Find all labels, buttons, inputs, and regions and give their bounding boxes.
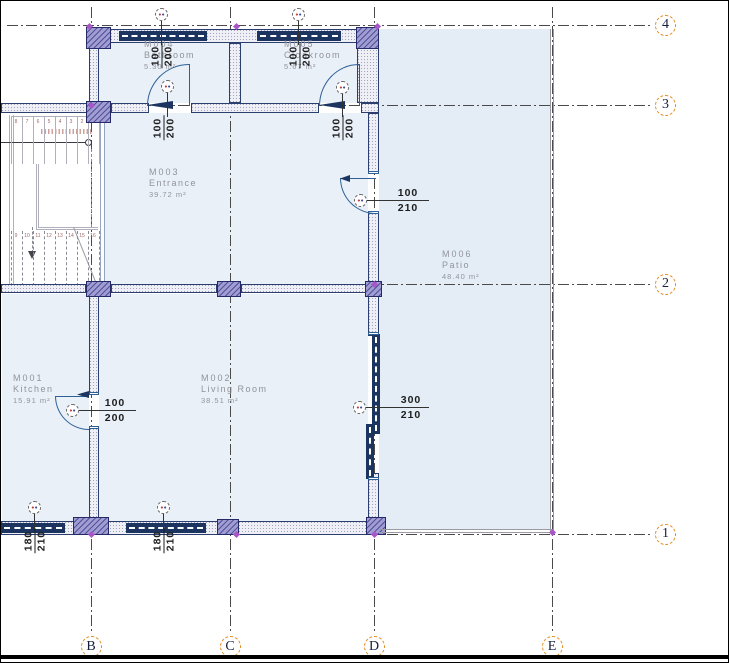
dim-width-kitchen-door[interactable]: 100 [93,397,137,409]
dim-height-bathroom-window: 200 [163,44,175,69]
dim-width-bathroom-door: 100 [152,116,165,141]
stair-tread-number: 12 [44,233,54,239]
stair-tread-number: 7 [22,119,32,125]
room-area: 39.72 m² [149,189,197,200]
stair-tread-number: 10 [22,233,32,239]
stair-walk-line-down [91,149,92,227]
cloakroom-door-leaf-open[interactable] [359,64,360,106]
wall-kitchen-divider-upper[interactable] [89,294,99,394]
stair-tread-number: 8 [11,119,21,125]
stair-tread-lower [22,231,23,286]
dim-height-bathroom-door: 200 [165,116,177,141]
stair-tread-lower [11,231,12,286]
patio-edge-bottom-outer [379,529,554,530]
kitchen-door-sill-top [89,392,99,395]
grid-bubble-D: D [364,636,385,657]
element-tag-living-room-slider[interactable] [353,401,366,414]
room-code: M003 [149,167,197,178]
dim-leader-cloakroom-window [298,21,299,45]
wall-grid2-b[interactable] [111,284,217,293]
element-tag-window-left[interactable] [28,501,41,514]
floor-plan-canvas[interactable]: BCDE4321 89710611512413314215116 [0,0,729,663]
dim-width-window-left: 180 [23,529,36,554]
stair-tread-number: 6 [33,119,43,125]
stair-tread-number: 13 [55,233,65,239]
grid-bubble-3: 3 [655,95,676,116]
dim-label-window-left[interactable]: 180210 [23,529,48,554]
stair-tread-number: 3 [66,119,76,125]
dim-width-cloakroom-door: 100 [331,116,344,141]
living-room-slider-leaf-1[interactable] [372,334,380,434]
grid-bubble-B: B [81,636,102,657]
stair-spec-text [41,129,93,134]
grid-bubble-1: 1 [655,524,676,545]
element-tag-cloakroom-door[interactable] [336,81,349,94]
room-name: Patio [442,260,480,271]
entrance-floor [103,113,368,284]
dim-width-living-room-slider[interactable]: 300 [389,394,433,406]
element-tag-bathroom-window[interactable] [155,8,168,21]
wall-bathroom-left[interactable] [89,43,99,103]
wall-grid2-a[interactable] [1,284,86,293]
entrance-door-sill-top [368,171,379,174]
living-room-floor [99,294,368,521]
stair-tread-number: 5 [44,119,54,125]
dim-height-window-mid: 210 [165,529,177,554]
dim-leader-bathroom-door [167,93,168,117]
room-code: M006 [442,249,480,260]
column-B2[interactable] [86,281,111,297]
dim-height-cloakroom-door: 200 [344,116,356,141]
column-B4[interactable] [86,27,111,49]
room-area: 48.40 m² [442,271,480,282]
dim-height-living-room-slider[interactable]: 210 [389,409,433,421]
stair-tread-lower [88,231,89,286]
dim-height-window-left: 210 [36,529,48,554]
dim-width-cloakroom-window: 100 [288,44,301,69]
element-tag-bathroom-door[interactable] [161,80,174,93]
stair-tread-number: 15 [77,233,87,239]
stair-tread-number: 9 [11,233,21,239]
wall-grid3-b[interactable] [191,103,319,113]
dim-width-window-mid: 180 [152,529,165,554]
wall-gridD-upper-a[interactable] [368,113,379,173]
column-D4[interactable] [356,27,379,49]
stair-entrance-divider [100,113,105,284]
dim-height-entrance-door[interactable]: 210 [386,202,430,214]
element-tag-entrance-door[interactable] [354,194,367,207]
wall-gridD-lower-a[interactable] [368,294,379,336]
stair-tread-lower [33,231,34,286]
element-tag-kitchen-door[interactable] [66,404,79,417]
stair-tread-lower [55,231,56,286]
dim-leader-window-left [34,514,35,530]
patio-edge-right-inner [553,29,554,533]
element-tag-window-mid[interactable] [157,501,170,514]
dim-label-bathroom-door[interactable]: 100200 [152,116,177,141]
stair-tread-lower [66,231,67,286]
wall-grid3-a[interactable] [111,103,149,113]
grid-line-4 [7,25,653,26]
room-label-M001[interactable]: M001Kitchen15.91 m² [13,373,54,406]
patio-edge-bottom-inner [379,532,554,533]
stair-tread-number: 4 [55,119,65,125]
stair-tread-lower [77,231,78,286]
stair-tread-number: 16 [88,233,98,239]
dim-label-window-mid[interactable]: 180210 [152,529,177,554]
room-name: Entrance [149,178,197,189]
wall-grid3-left[interactable] [1,103,89,113]
dim-label-cloakroom-door[interactable]: 100200 [331,116,356,141]
wall-bath-cloak-divider[interactable] [229,43,241,103]
dim-leader-window-mid [163,514,164,530]
grid-bubble-2: 2 [655,274,676,295]
element-tag-cloakroom-window[interactable] [292,8,305,21]
dim-height-kitchen-door[interactable]: 200 [93,412,137,424]
room-code: M001 [13,373,54,384]
grid-bubble-E: E [542,636,563,657]
living-room-slider-leaf-2[interactable] [366,424,374,479]
grid-bubble-4: 4 [655,15,676,36]
dim-label-cloakroom-window[interactable]: 100200 [288,44,313,69]
stair-tread-number: 14 [66,233,76,239]
room-name: Living Room [201,384,268,395]
dim-leader-cloakroom-door [342,94,343,117]
dim-leader-living-room-slider [366,407,429,408]
dim-leader-entrance-door [367,200,429,201]
kitchen-door-sill-bottom [89,426,99,429]
room-label-M006[interactable]: M006Patio48.40 m² [442,249,480,282]
wall-gridD-lower-b[interactable] [368,473,379,521]
dim-height-cloakroom-window: 200 [301,44,313,69]
stair-walk-line [1,142,89,143]
room-name: Kitchen [13,384,54,395]
wall-cloakroom-right[interactable] [357,43,379,103]
stair-tread-lower [99,231,100,286]
stair-tread-number: 11 [33,233,43,239]
room-label-M002[interactable]: M002Living Room38.51 m² [201,373,268,406]
stair-landing-void [36,164,98,230]
dim-width-bathroom-window: 100 [150,44,163,69]
grid-bubble-C: C [220,636,241,657]
wall-grid3-c[interactable] [361,103,379,113]
stair-tread-upper [99,116,100,164]
dim-width-entrance-door[interactable]: 100 [386,187,430,199]
frame-bottom-edge [1,655,729,659]
room-area: 15.91 m² [13,395,54,406]
dim-leader-kitchen-door [79,410,136,411]
wall-grid2-c[interactable] [241,284,367,293]
patio-edge-right-outer [550,29,551,533]
stair-walk-arrow [28,251,36,259]
room-label-M003[interactable]: M003Entrance39.72 m² [149,167,197,200]
slider-sill-top [368,332,379,335]
dim-leader-bathroom-window [161,21,162,45]
wall-gridD-upper-b[interactable] [368,213,379,284]
slider-sill-bottom [368,477,379,480]
room-code: M002 [201,373,268,384]
stair-tread-lower [44,231,45,286]
room-area: 38.51 m² [201,395,268,406]
column-C2[interactable] [217,281,241,297]
dim-label-bathroom-window[interactable]: 100200 [150,44,175,69]
